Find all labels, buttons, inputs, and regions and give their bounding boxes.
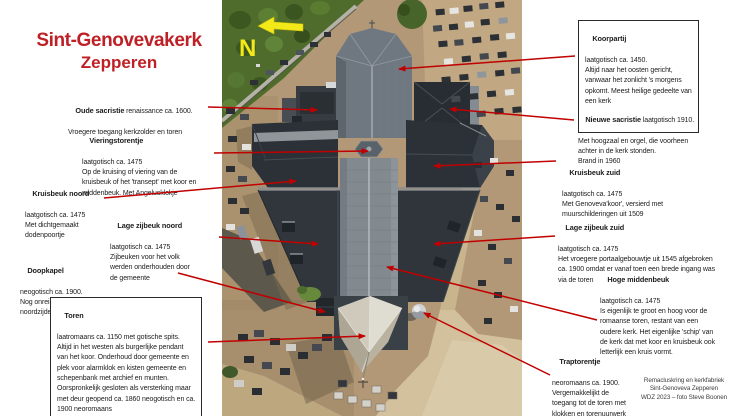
page-title: Sint-Genovevakerk Zepperen: [24, 30, 214, 73]
label-body: laatgotisch ca. 1475 Met dichtgemaakt do…: [25, 211, 89, 242]
label-toren: Toren laatromaans ca. 1150 met gotische …: [50, 297, 202, 416]
label-vieringstorentje: Vieringstorentje laatgotisch ca. 1475 Op…: [82, 126, 196, 220]
label-heading: Doopkapel: [27, 266, 63, 275]
title-line1: Sint-Genovevakerk: [24, 30, 214, 52]
label-body: laatgotisch ca. 1450. Altijd naar het oo…: [585, 56, 692, 107]
label-heading: Hoge middenbeuk: [607, 275, 669, 284]
slide: N Sint-Genovevakerk Zepperen Oude sacris…: [0, 0, 740, 416]
label-heading: Lage zijbeuk noord: [117, 221, 182, 230]
label-heading: Kruisbeuk zuid: [569, 168, 620, 177]
label-heading-rest: laatgotisch 1910.: [641, 117, 694, 124]
label-heading: Toren: [64, 311, 83, 320]
aerial-photo: N: [222, 0, 522, 416]
title-line2: Zepperen: [24, 53, 214, 73]
label-body: neoromaans ca. 1900. Vergemakkelijkt de …: [552, 379, 626, 416]
label-heading: Kruisbeuk noord: [32, 189, 89, 198]
label-kruisbeuk-noord: Kruisbeuk noord laatgotisch ca. 1475 Met…: [25, 179, 89, 262]
crossing-fleche: [355, 141, 383, 157]
label-heading-rest: renaissance ca. 1600.: [124, 108, 192, 115]
label-traptorentje: Traptorentje neoromaans ca. 1900. Vergem…: [552, 347, 626, 416]
nave-roof: [340, 158, 398, 302]
label-heading: Koorpartij: [592, 34, 626, 43]
label-body: laatromaans ca. 1150 met gotische spits.…: [57, 333, 195, 415]
label-heading: Nieuwe sacristie: [585, 115, 641, 124]
aerial-photo-svg: N: [222, 0, 522, 416]
label-body: laatgotisch ca. 1475 Op de kruising of v…: [82, 158, 196, 199]
credit-text: Remacluskring en kerkfabriek Sint-Genove…: [626, 377, 740, 402]
label-heading: Oude sacristie: [75, 106, 124, 115]
south-transept-roof: [406, 120, 494, 188]
label-heading: Vieringstorentje: [89, 136, 143, 145]
compass-label: N: [239, 35, 256, 62]
label-heading: Lage zijbeuk zuid: [565, 223, 624, 232]
north-transept-roof: [252, 120, 338, 188]
label-heading: Traptorentje: [559, 357, 600, 366]
